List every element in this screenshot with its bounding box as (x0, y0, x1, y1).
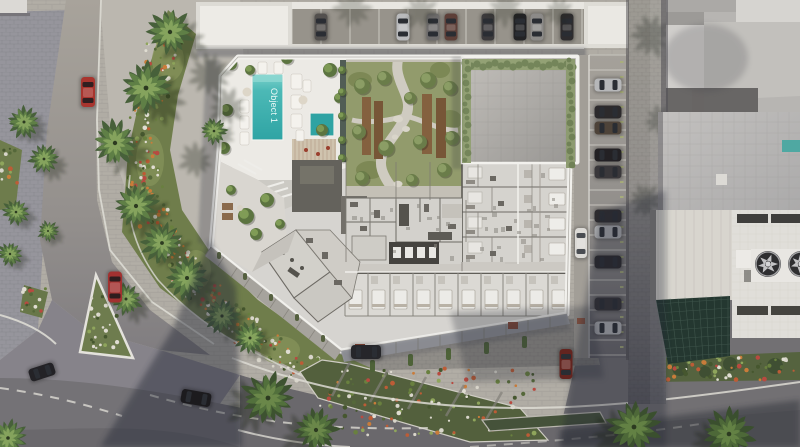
svg-text:Object 1: Object 1 (269, 88, 279, 123)
